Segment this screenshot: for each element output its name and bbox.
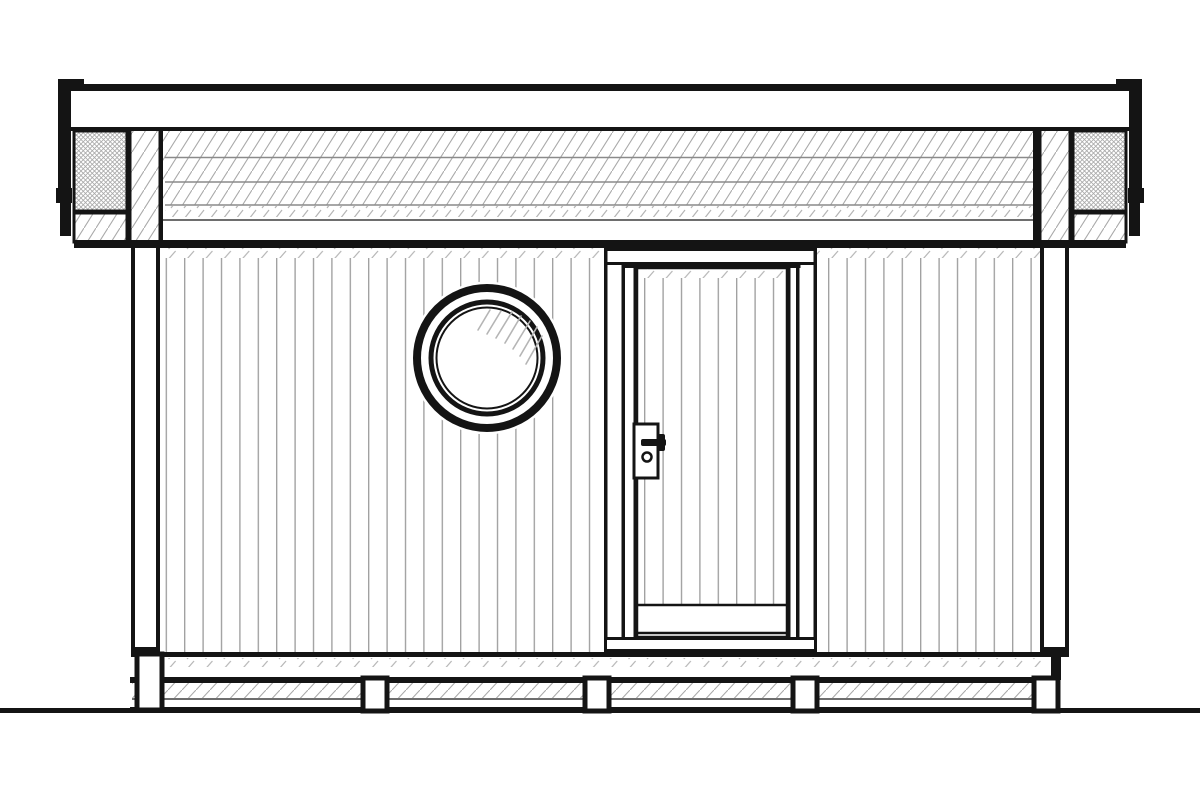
corner-trim-left-edge-b bbox=[156, 248, 160, 652]
foundation-post bbox=[1034, 678, 1058, 711]
gutter-right-crosshatch-block bbox=[1073, 131, 1126, 211]
corner-post-left-edge-a bbox=[127, 127, 132, 244]
fascia-soffit-rule bbox=[163, 219, 1037, 221]
keyhole-icon bbox=[643, 453, 652, 462]
siding-top-ticks bbox=[160, 248, 1040, 258]
door-casing-right-outer bbox=[814, 248, 818, 652]
door-bottom-rail bbox=[637, 605, 787, 633]
corner-trim-right bbox=[1040, 248, 1069, 654]
foundation-post bbox=[793, 678, 817, 711]
siding-field bbox=[160, 248, 1040, 652]
door-casing-left-outer bbox=[604, 248, 608, 652]
wall-top-band bbox=[74, 240, 1126, 248]
gutter-end-left bbox=[74, 131, 127, 242]
corner-trim-right-edge-a bbox=[1040, 248, 1044, 652]
corner-trim-left bbox=[131, 248, 160, 654]
corner-post-right-edge-b bbox=[1069, 127, 1074, 244]
roof-end-bar-right-foot bbox=[1129, 150, 1140, 236]
corner-trim-right-board bbox=[1040, 248, 1069, 652]
door-leaf-top-ticks bbox=[640, 269, 784, 278]
corner-trim-left-board bbox=[131, 248, 160, 652]
door-casing-left-inner bbox=[622, 264, 626, 645]
door-threshold bbox=[606, 639, 816, 651]
porthole-window bbox=[411, 282, 564, 435]
corner-trim-left-edge-a bbox=[131, 248, 135, 652]
fascia-right-end-bar bbox=[1033, 127, 1038, 244]
gutter-end-right bbox=[1073, 131, 1126, 242]
roof-end-bar-left-foot bbox=[60, 150, 71, 236]
corner-post-right-edge-a bbox=[1037, 127, 1042, 244]
foundation-post bbox=[585, 678, 609, 711]
fascia-corner-post-right bbox=[1037, 127, 1073, 244]
roof-cap-top-edge bbox=[58, 84, 1142, 91]
corner-post-left-hatch bbox=[131, 131, 159, 240]
door-head-casing bbox=[606, 250, 816, 264]
handle-backplate bbox=[634, 424, 658, 478]
fascia-drip-ticks bbox=[165, 206, 1033, 217]
elevation-drawing bbox=[0, 0, 1200, 800]
corner-post-right-hatch bbox=[1041, 131, 1069, 240]
entry-door bbox=[604, 248, 817, 652]
fascia-band bbox=[163, 127, 1038, 244]
gutter-right-hatch-block bbox=[1073, 213, 1126, 242]
corner-post-left-edge-b bbox=[159, 127, 164, 244]
elevation-drawing-canvas bbox=[0, 0, 1200, 800]
fascia-hatch-field bbox=[163, 131, 1037, 205]
lever-handle-grip bbox=[658, 434, 665, 451]
siding-boards bbox=[160, 258, 1040, 652]
fascia-top-rule bbox=[71, 127, 1129, 131]
corner-trim-right-edge-b bbox=[1065, 248, 1069, 652]
wall-bottom-line bbox=[131, 652, 1069, 657]
gutter-left-hatch-block bbox=[74, 213, 127, 242]
gutter-left-crosshatch-block bbox=[74, 131, 127, 211]
roof bbox=[56, 79, 1144, 244]
fascia-corner-post-left bbox=[127, 127, 163, 244]
siding-bottom-ticks bbox=[135, 658, 1065, 667]
door-casing-right-inner bbox=[796, 264, 800, 645]
foundation-post bbox=[137, 654, 162, 710]
foundation-post bbox=[363, 678, 387, 711]
wall bbox=[74, 240, 1126, 667]
